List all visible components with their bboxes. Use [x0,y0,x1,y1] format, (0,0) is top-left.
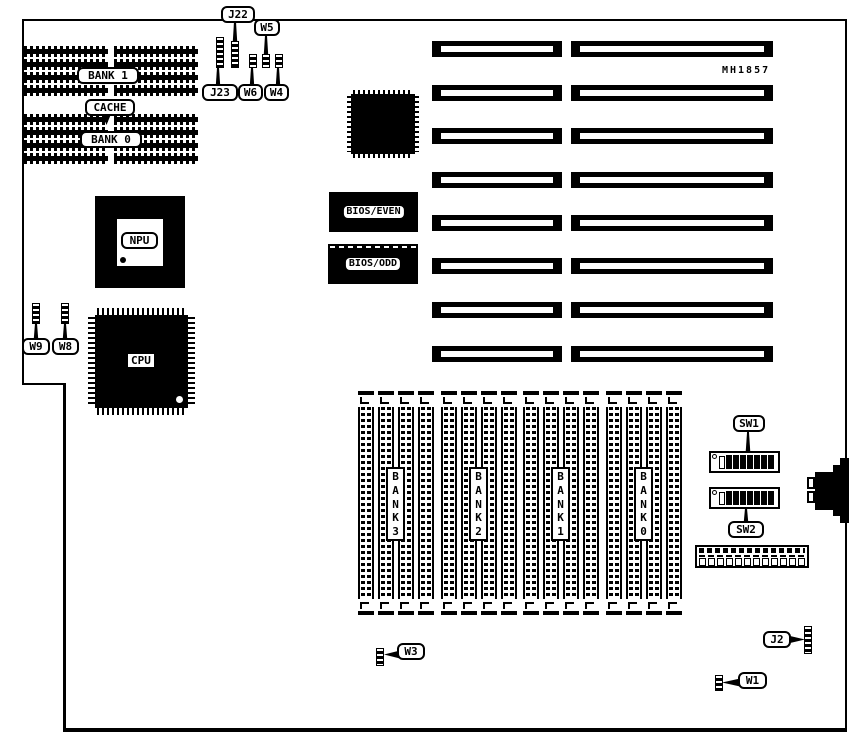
simm-socket [501,391,517,615]
switch-cell [747,455,753,469]
switch-cell [740,491,746,505]
switch-cell [726,455,732,469]
isa-slot-long [571,215,773,231]
switch-cell [754,491,760,505]
callout-w5: W5 [254,19,280,36]
socket-contacts [501,407,517,599]
jumper-w9 [32,303,40,324]
pin-fringe [97,407,186,415]
jumper-w8 [61,303,69,324]
isa-slot-long [571,346,773,362]
socket-clip [483,602,492,609]
isa-slot-short [432,215,562,231]
isa-slot-short [432,172,562,188]
switch-cell [726,491,732,505]
isa-slot-short [432,41,562,57]
board-outline-left-upper [22,19,24,385]
simm-bank-3: B A N K 3 [358,391,434,615]
bank-letter: N [392,498,399,511]
callout-j2: J2 [763,631,791,648]
socket-clip [360,602,369,609]
simm-bank-0: B A N K 0 [606,391,682,615]
isa-slot-long [571,128,773,144]
socket-clip [380,602,389,609]
simm-bank0-label: B A N K 0 [634,467,653,541]
bank-letter: A [557,484,564,497]
bank-letter: K [392,511,399,524]
pointer-w9 [32,323,40,339]
switch-index-dot [712,490,717,495]
bios-even-chip: BIOS/EVEN [329,192,418,232]
callout-w9: W9 [22,338,50,355]
socket-clip [525,397,534,404]
pointer-j2 [789,635,805,644]
pin-header-connector [695,545,809,568]
socket-contacts [583,407,599,599]
socket-clip [463,397,472,404]
pointer-sw2 [742,508,750,522]
pin-fringe [187,317,195,406]
bank-letter: B [392,470,399,483]
label-cache: CACHE [85,99,135,116]
header-pin [699,558,706,566]
header-pin [762,558,769,566]
socket-clip [400,602,409,609]
socket-clip [380,397,389,404]
isa-slot-long [571,85,773,101]
jumper-j22 [231,41,239,68]
bank-letter: 3 [392,525,399,538]
bank-letter: N [640,498,647,511]
switch-cell [719,456,725,469]
switch-index-dot [712,454,717,459]
isa-slot-long [571,302,773,318]
npu-socket: NPU [95,196,185,288]
npu-pin1-dot [120,257,126,263]
socket-clip [503,602,512,609]
socket-clip [565,397,574,404]
header-divider [699,555,805,557]
socket-clip [483,397,492,404]
switch-cell [740,455,746,469]
connector-tab [807,477,815,489]
header-pin [780,558,787,566]
socket-clip [648,397,657,404]
socket-clip [608,602,617,609]
header-pin [789,558,796,566]
header-pin [708,558,715,566]
isa-slot-long [571,258,773,274]
socket-clip [668,397,677,404]
simm-bank-2: B A N K 2 [441,391,517,615]
label-bank1: BANK 1 [77,67,139,84]
isa-slot-short [432,85,562,101]
switch-cell [768,455,774,469]
header-pin [735,558,742,566]
header-pin [771,558,778,566]
dip-switch-sw1 [709,451,780,473]
callout-j23: J23 [202,84,238,101]
bank-letter: K [640,511,647,524]
simm-socket [418,391,434,615]
socket-contacts [441,407,457,599]
socket-clip [463,602,472,609]
simm-socket [441,391,457,615]
socket-clip [420,602,429,609]
socket-clip [648,602,657,609]
socket-clip [503,397,512,404]
keyboard-connector [833,465,841,516]
bios-odd-label: BIOS/ODD [345,257,401,271]
simm-bank3-label: B A N K 3 [386,467,405,541]
bank-letter: B [475,470,482,483]
socket-clip [628,397,637,404]
simm-socket [523,391,539,615]
simm-socket [583,391,599,615]
bank-letter: 0 [640,525,647,538]
qfp-body [351,94,415,154]
switch-cell [719,492,725,505]
dip-switch-sw2 [709,487,780,509]
header-pins-bottom [699,558,805,566]
connector-tab [807,491,815,503]
switch-cell [733,491,739,505]
pointer-w1 [722,678,739,687]
header-pin [798,558,805,566]
simm-bank1-label: B A N K 1 [551,467,570,541]
socket-clip [443,602,452,609]
switch-cell [733,455,739,469]
jumper-w1 [715,675,723,691]
isa-slot-short [432,346,562,362]
bios-odd-dashed-edge [330,246,416,248]
dip-chip [24,153,108,164]
simm-socket [606,391,622,615]
socket-clip [545,602,554,609]
header-pin [717,558,724,566]
simm-socket [358,391,374,615]
cpu-label: CPU [127,353,155,368]
cpu-pin1-dot [176,396,183,403]
isa-slot-short [432,128,562,144]
npu-socket-inner: NPU [117,219,163,266]
board-outline-right [845,19,847,730]
cpu-chip: CPU [88,308,195,415]
bank-letter: A [640,484,647,497]
callout-w6: W6 [238,84,263,101]
bank-letter: A [475,484,482,497]
board-outline-bottom [63,728,847,732]
simm-bank-1: B A N K 1 [523,391,599,615]
socket-clip [360,397,369,404]
socket-clip [420,397,429,404]
pointer-w8 [61,323,69,339]
bank-letter: N [557,498,564,511]
callout-sw2: SW2 [728,521,764,538]
header-pin [726,558,733,566]
board-outline-top [22,19,847,21]
switch-cells [719,491,774,505]
keyboard-connector [840,458,849,523]
switch-cells [719,455,774,469]
socket-clip [525,602,534,609]
socket-clip [628,602,637,609]
callout-w8: W8 [52,338,79,355]
socket-contacts [523,407,539,599]
header-pins-top [699,548,805,553]
bank-letter: K [557,511,564,524]
socket-clip [608,397,617,404]
board-outline-left-lower [63,383,66,730]
socket-clip [565,602,574,609]
isa-slot-long [571,172,773,188]
dip-chip [24,46,108,57]
qfp-chip [347,90,419,158]
keyboard-connector [815,472,834,510]
jumper-w5 [262,54,270,68]
socket-clip [400,397,409,404]
dip-chip [114,153,198,164]
bank-letter: K [475,511,482,524]
socket-contacts [358,407,374,599]
jumper-w6 [249,54,257,68]
isa-slot-short [432,258,562,274]
pointer-w5 [262,35,270,55]
jumper-j2 [804,626,812,654]
switch-cell [761,455,767,469]
jumper-w3 [376,648,384,666]
socket-contacts [418,407,434,599]
bank-letter: 1 [557,525,564,538]
socket-clip [545,397,554,404]
pointer-sw1 [744,432,752,451]
switch-cell [747,491,753,505]
header-pin [753,558,760,566]
part-number: MH1857 [722,65,770,76]
dip-chip [114,85,198,96]
bios-even-label: BIOS/EVEN [342,205,404,219]
socket-clip [443,397,452,404]
socket-clip [585,602,594,609]
switch-cell [768,491,774,505]
bank-letter: B [557,470,564,483]
jumper-j23 [216,37,224,68]
jumper-w4 [275,54,283,68]
bank-letter: N [475,498,482,511]
cpu-body: CPU [95,315,188,408]
header-pin [744,558,751,566]
board-outline-notch [22,383,66,385]
socket-clip [585,397,594,404]
npu-label: NPU [121,232,158,249]
socket-contacts [606,407,622,599]
callout-w1: W1 [738,672,767,689]
dip-chip [114,46,198,57]
bios-odd-chip: BIOS/ODD [328,244,418,284]
bank-letter: 2 [475,525,482,538]
callout-sw1: SW1 [733,415,765,432]
switch-cell [761,491,767,505]
dip-chip [24,85,108,96]
isa-slot-short [432,302,562,318]
simm-socket [666,391,682,615]
isa-slot-long [571,41,773,57]
bank-letter: A [392,484,399,497]
callout-j22: J22 [221,6,255,23]
socket-contacts [666,407,682,599]
bank-letter: B [640,470,647,483]
switch-cell [754,455,760,469]
callout-w4: W4 [264,84,289,101]
label-bank0: BANK 0 [80,131,142,148]
socket-clip [668,602,677,609]
motherboard-diagram: BANK 1 CACHE BANK 0 J22 W5 J23 W6 W4 BIO… [0,0,851,737]
simm-bank2-label: B A N K 2 [469,467,488,541]
pointer-j22 [231,21,239,42]
callout-w3: W3 [397,643,425,660]
